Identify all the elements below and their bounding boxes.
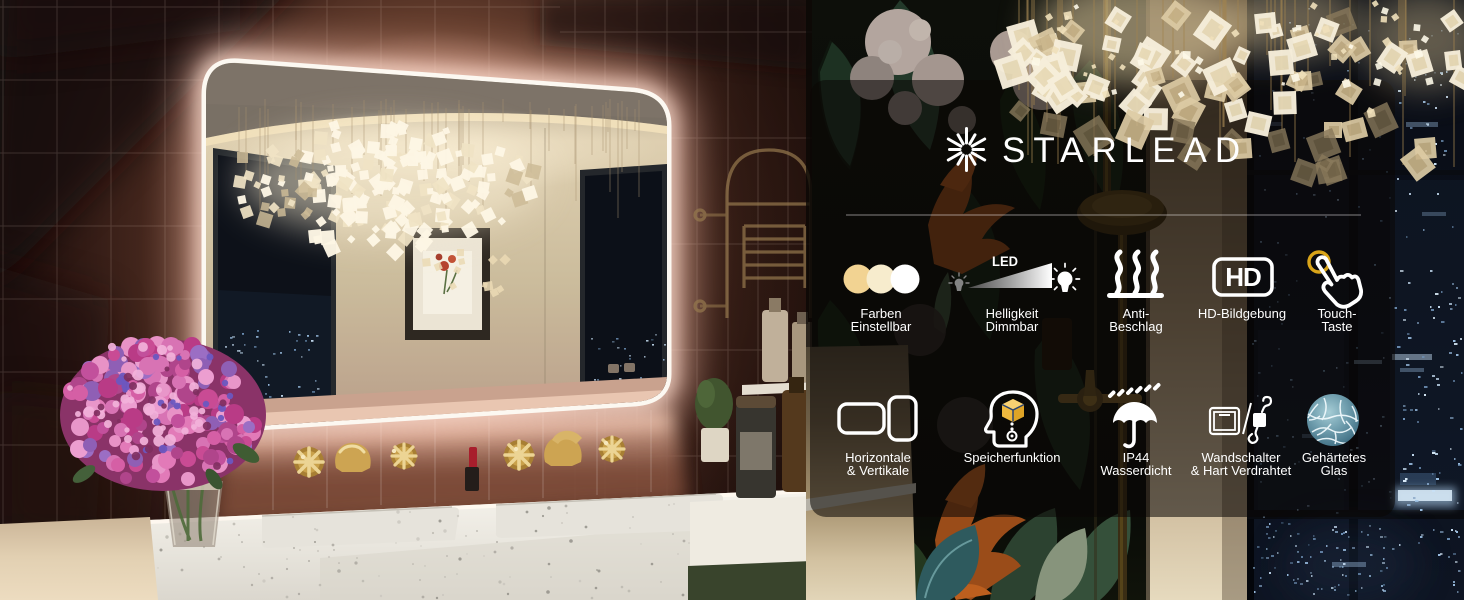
svg-text:STARLEAD: STARLEAD bbox=[1002, 131, 1248, 170]
svg-text:Einstellbar: Einstellbar bbox=[851, 319, 912, 334]
svg-text:Wasserdicht: Wasserdicht bbox=[1100, 463, 1171, 478]
svg-text:Beschlag: Beschlag bbox=[1109, 319, 1162, 334]
svg-text:Speicherfunktion: Speicherfunktion bbox=[964, 450, 1061, 465]
svg-text:Taste: Taste bbox=[1321, 319, 1352, 334]
svg-text:& Hart Verdrahtet: & Hart Verdrahtet bbox=[1191, 463, 1292, 478]
svg-text:Dimmbar: Dimmbar bbox=[986, 319, 1039, 334]
svg-text:HD-Bildgebung: HD-Bildgebung bbox=[1198, 306, 1286, 321]
svg-text:HD: HD bbox=[1225, 262, 1261, 292]
svg-text:Glas: Glas bbox=[1321, 463, 1348, 478]
svg-text:LED: LED bbox=[992, 253, 1018, 269]
svg-text:& Vertikale: & Vertikale bbox=[847, 463, 909, 478]
